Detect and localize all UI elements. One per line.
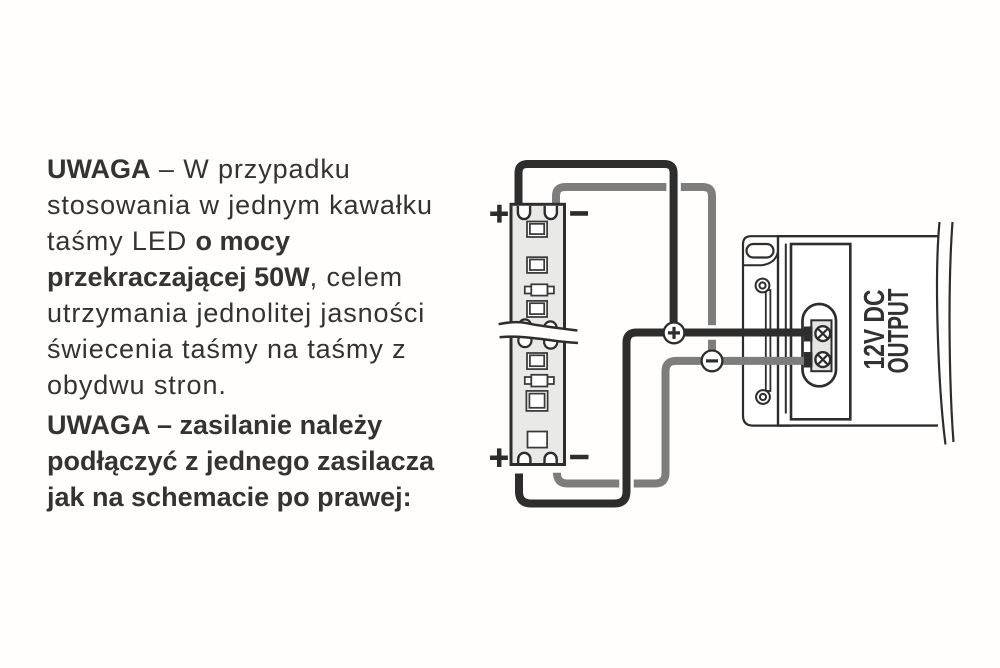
svg-text:OUTPUT: OUTPUT [883,288,915,373]
